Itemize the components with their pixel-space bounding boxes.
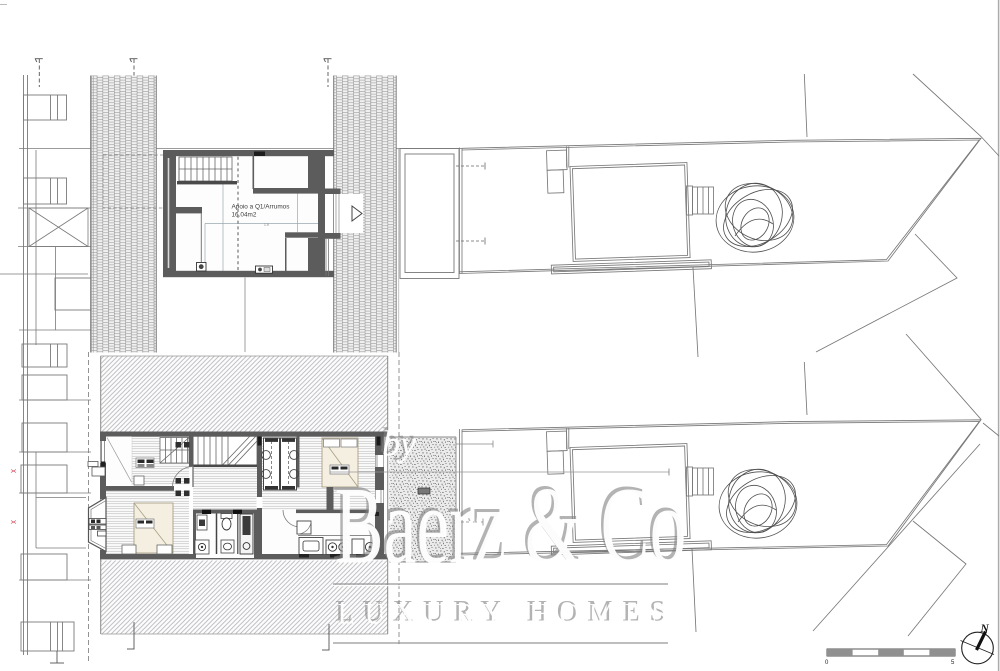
- svg-text:N: N: [980, 623, 990, 635]
- svg-text:Apoio a Q1/Arrumos: Apoio a Q1/Arrumos: [232, 204, 290, 211]
- svg-text:Baerz & Co: Baerz & Co: [335, 465, 687, 587]
- svg-text:LUXURY HOMES: LUXURY HOMES: [338, 599, 678, 631]
- svg-text:1.9: 1.9: [264, 223, 269, 227]
- svg-text:16.04m2: 16.04m2: [232, 212, 257, 219]
- svg-text:by: by: [382, 424, 416, 464]
